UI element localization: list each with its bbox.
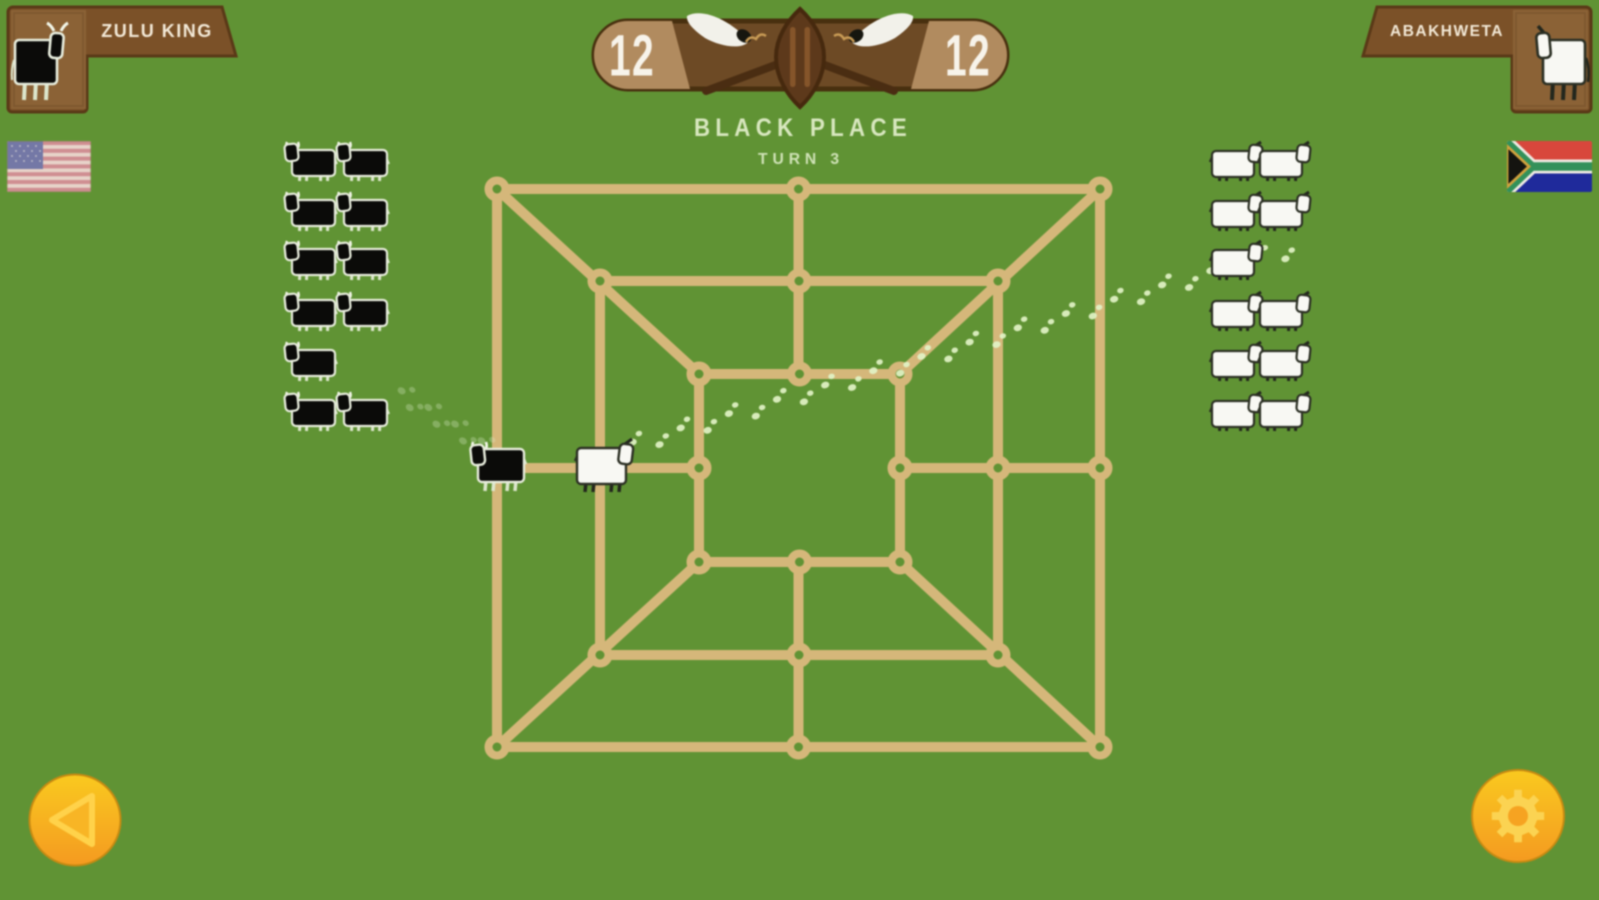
svg-text:12: 12 — [945, 24, 991, 89]
svg-text:ABAKHWETA: ABAKHWETA — [1390, 23, 1504, 40]
svg-text:12: 12 — [609, 24, 655, 89]
svg-text:TURN 3: TURN 3 — [758, 151, 844, 168]
svg-text:BLACK PLACE: BLACK PLACE — [694, 114, 912, 142]
svg-text:ZULU KING: ZULU KING — [101, 21, 213, 41]
